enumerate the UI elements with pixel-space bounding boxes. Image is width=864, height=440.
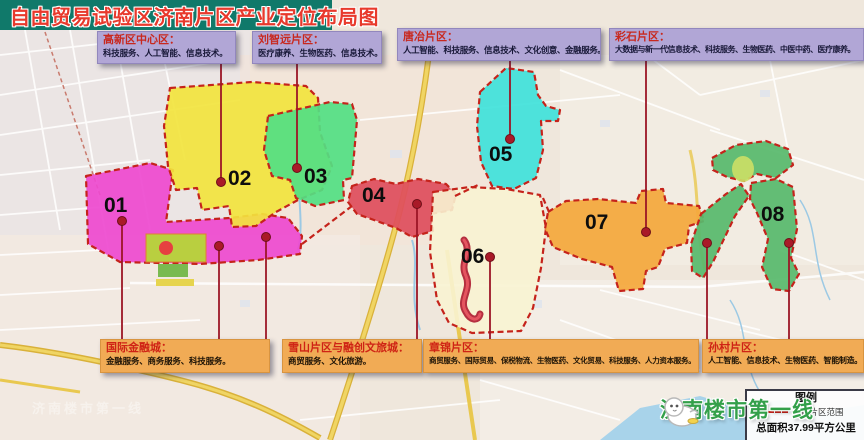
page-title: 自由贸易试验区济南片区产业定位布局图 <box>10 1 379 30</box>
callout-desc: 商贸服务、国际贸易、保税物流、生物医药、文化贸易、科技服务、人力资本服务。 <box>429 356 693 366</box>
callout-liuzhiyuan: 刘智远片区： 医疗康养、生物医药、信息技术。 <box>252 31 382 64</box>
zone-label-06: 06 <box>461 245 484 269</box>
title-banner: 自由贸易试验区济南片区产业定位布局图 <box>0 0 332 30</box>
base-map <box>0 0 864 440</box>
zone-label-03: 03 <box>304 165 327 189</box>
callout-title: 孙村片区： <box>708 342 858 356</box>
callout-title: 雪山片区与融创文旅城： <box>288 342 416 356</box>
callout-title: 刘智远片区： <box>258 34 376 48</box>
zone-label-05: 05 <box>489 143 512 167</box>
callout-tangye: 唐冶片区： 人工智能、科技服务、信息技术、文化创意、金融服务。 <box>397 28 601 61</box>
zone-label-07: 07 <box>585 211 608 235</box>
mascot-icon <box>660 394 702 428</box>
callout-desc: 大数据与新一代信息技术、科技服务、生物医药、中医中药、医疗康养。 <box>615 45 858 55</box>
callout-desc: 医疗康养、生物医药、信息技术。 <box>258 48 376 59</box>
map-infographic: 01 02 03 04 05 06 07 08 自由贸易试验区济南片区产业定位布… <box>0 0 864 440</box>
callout-desc: 金融服务、商务服务、科技服务。 <box>106 356 264 367</box>
callout-title: 国际金融城： <box>106 342 264 356</box>
callout-caishi: 彩石片区： 大数据与新一代信息技术、科技服务、生物医药、中医中药、医疗康养。 <box>609 28 864 61</box>
watermark-faint: 济南楼市第一线 <box>32 398 144 417</box>
callout-desc: 科技服务、人工智能、信息技术。 <box>103 48 230 59</box>
callout-title: 彩石片区： <box>615 31 858 45</box>
callout-desc: 人工智能、科技服务、信息技术、文化创意、金融服务。 <box>403 45 595 56</box>
callout-suncun: 孙村片区： 人工智能、信息技术、生物医药、智能制造。 <box>702 339 864 373</box>
callout-title: 高新区中心区： <box>103 34 230 48</box>
callout-desc: 人工智能、信息技术、生物医药、智能制造。 <box>708 356 858 366</box>
zone-label-04: 04 <box>362 184 385 208</box>
callout-desc: 商贸服务、文化旅游。 <box>288 356 416 367</box>
zone-label-08: 08 <box>761 203 784 227</box>
callout-zhangjin: 章锦片区： 商贸服务、国际贸易、保税物流、生物医药、文化贸易、科技服务、人力资本… <box>423 339 699 373</box>
park-patch <box>732 156 754 182</box>
watermark: 济南楼市第一线 <box>660 394 814 424</box>
zone-label-02: 02 <box>228 167 251 191</box>
callout-xueshan: 雪山片区与融创文旅城： 商贸服务、文化旅游。 <box>282 339 422 373</box>
callout-gaoxin-center: 高新区中心区： 科技服务、人工智能、信息技术。 <box>97 31 236 64</box>
callout-title: 章锦片区： <box>429 342 693 356</box>
callout-title: 唐冶片区： <box>403 31 595 45</box>
zone-label-01: 01 <box>104 194 127 218</box>
callout-intl-finance-city: 国际金融城： 金融服务、商务服务、科技服务。 <box>100 339 270 373</box>
